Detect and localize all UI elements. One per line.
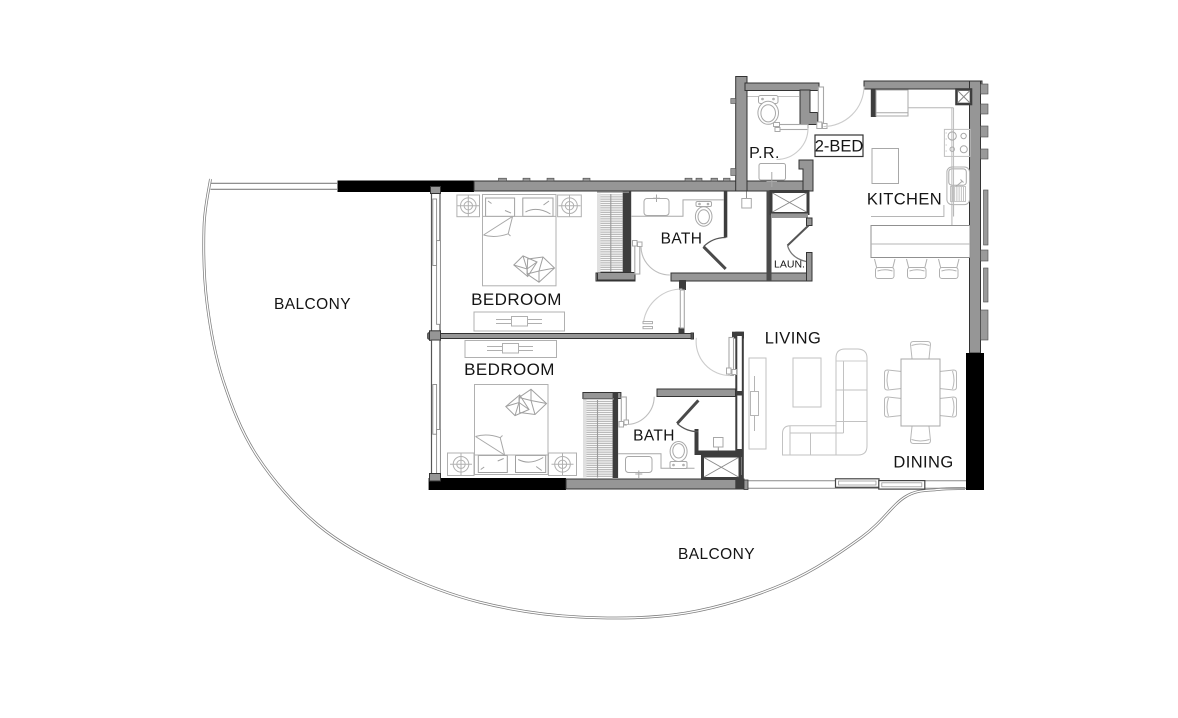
svg-text:2-BED: 2-BED — [815, 138, 864, 156]
svg-text:BEDROOM: BEDROOM — [471, 290, 562, 309]
svg-text:BEDROOM: BEDROOM — [464, 360, 555, 379]
svg-text:DINING: DINING — [893, 454, 953, 472]
svg-text:BALCONY: BALCONY — [678, 546, 755, 563]
svg-text:BALCONY: BALCONY — [274, 296, 351, 313]
svg-text:BATH: BATH — [633, 428, 675, 445]
svg-text:BATH: BATH — [661, 231, 703, 248]
svg-text:LIVING: LIVING — [765, 330, 822, 348]
svg-text:KITCHEN: KITCHEN — [867, 191, 942, 209]
svg-text:P.R.: P.R. — [749, 145, 780, 162]
svg-text:LAUN.: LAUN. — [774, 259, 805, 271]
